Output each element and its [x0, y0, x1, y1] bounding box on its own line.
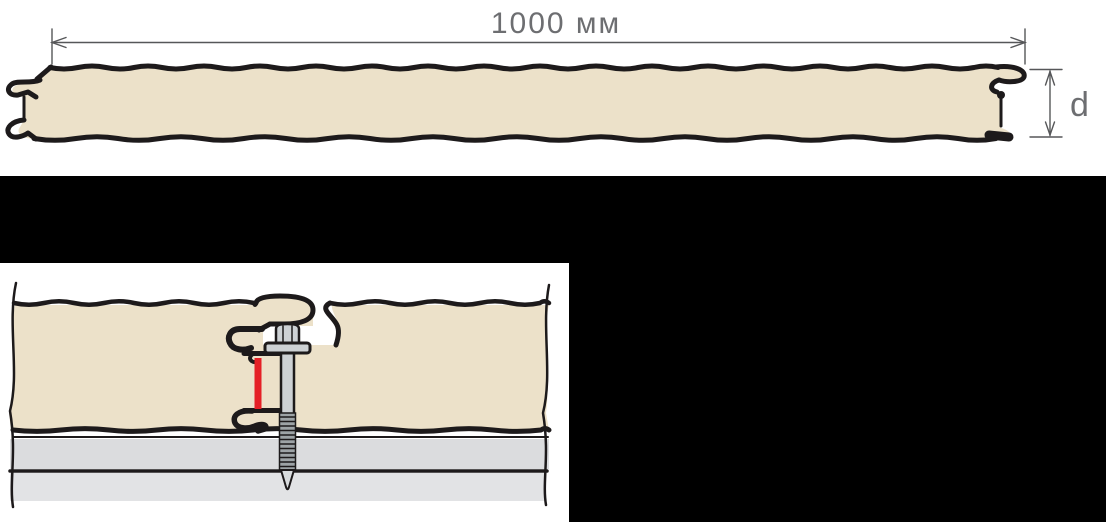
- joint-detail-figure: [0, 263, 569, 522]
- screw-washer: [265, 343, 310, 353]
- panel-top-skin: [50, 66, 998, 69]
- substructure-layer-2: [10, 473, 546, 501]
- detail-right-top-skin: [330, 301, 549, 304]
- joint-detail-sheet: [0, 263, 569, 522]
- width-dimension: 1000 мм: [52, 7, 1025, 64]
- diagram-canvas: 1000 мм d: [0, 0, 1106, 522]
- panel-core-fill: [12, 68, 1024, 139]
- thickness-dimension: d: [1030, 70, 1089, 138]
- width-dimension-label: 1000 мм: [491, 7, 621, 40]
- panel-cross-section-figure: 1000 мм d: [0, 0, 1106, 176]
- panel-body: [8, 66, 1024, 140]
- panel-bottom-skin: [34, 137, 996, 141]
- thickness-tick-lines: [1030, 70, 1062, 138]
- thickness-dimension-label: d: [1070, 86, 1089, 124]
- screw-shank: [281, 353, 294, 415]
- screw-hex-head: [276, 324, 299, 343]
- detail-left-top-skin: [14, 301, 256, 304]
- panel-cross-section-sheet: 1000 мм d: [0, 0, 1106, 176]
